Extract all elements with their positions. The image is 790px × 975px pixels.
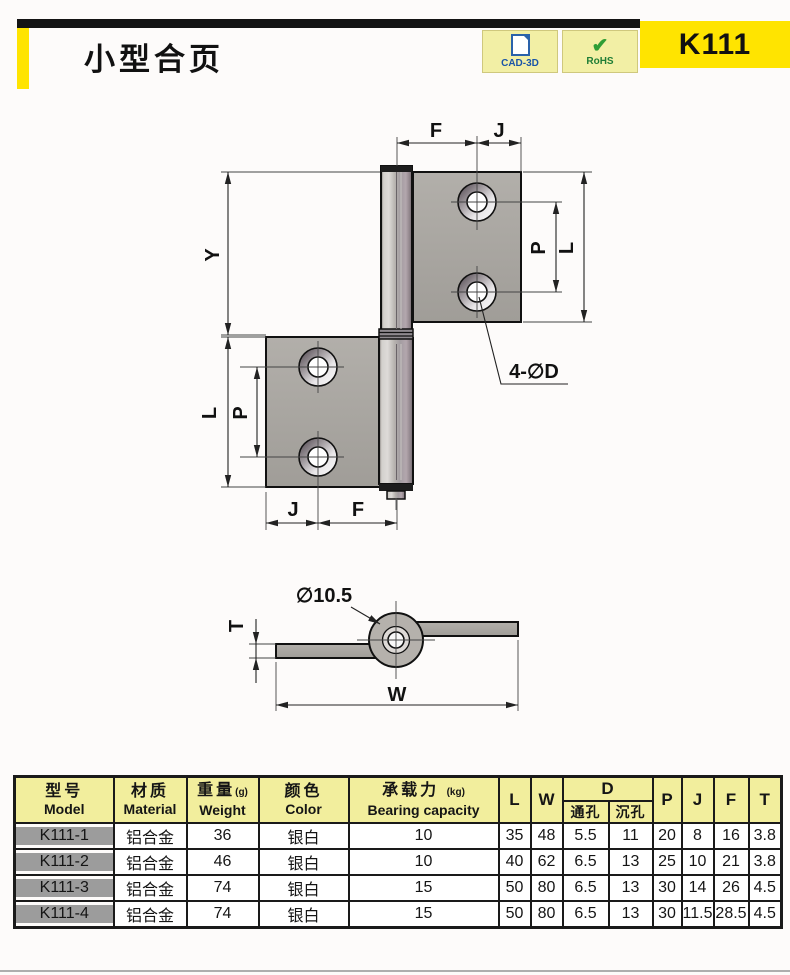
cell-t: 3.8 (749, 849, 782, 875)
col-header-J: J (682, 777, 714, 823)
cell-d-through: 6.5 (563, 901, 609, 928)
spec-table-container: 型号 Model 材质 Material 重量(g) Weight 颜色 Col… (13, 775, 783, 929)
cell-bearing: 15 (349, 875, 499, 901)
cell-p: 25 (653, 849, 682, 875)
spec-table: 型号 Model 材质 Material 重量(g) Weight 颜色 Col… (13, 775, 783, 929)
bottom-divider (0, 970, 790, 972)
barrel-bottom-cap (379, 484, 413, 491)
dim-label-Y: Y (202, 248, 224, 262)
cell-material: 铝合金 (114, 849, 187, 875)
col-header-P: P (653, 777, 682, 823)
cell-t: 4.5 (749, 901, 782, 928)
dim-label-L-right: L (556, 242, 578, 254)
product-code-box: K111 (640, 21, 790, 68)
cell-bearing: 10 (349, 823, 499, 849)
table-row: K111-2 铝合金 46 银白 10 40 62 6.5 13 25 10 2… (15, 849, 782, 875)
cell-bearing: 15 (349, 901, 499, 928)
col-header-color: 颜色 Color (259, 777, 349, 823)
cell-weight: 46 (187, 849, 259, 875)
cell-color: 银白 (259, 849, 349, 875)
catalog-page: { "page": {"background": "#fdfbfa", "bot… (0, 0, 790, 975)
cell-d-through: 6.5 (563, 849, 609, 875)
cell-weight: 36 (187, 823, 259, 849)
left-leaf-profile (276, 644, 382, 658)
dim-label-P-right: P (528, 241, 550, 254)
cell-f: 16 (714, 823, 749, 849)
cell-j: 11.5 (682, 901, 714, 928)
col-header-W: W (531, 777, 563, 823)
table-row: K111-4 铝合金 74 银白 15 50 80 6.5 13 30 11.5… (15, 901, 782, 928)
cell-d-sink: 13 (609, 849, 653, 875)
knuckle-diameter-label: ∅10.5 (296, 585, 352, 607)
barrel-top-cap (381, 166, 412, 172)
cell-color: 银白 (259, 901, 349, 928)
cell-color: 银白 (259, 875, 349, 901)
cell-material: 铝合金 (114, 875, 187, 901)
cell-f: 26 (714, 875, 749, 901)
cell-bearing: 10 (349, 849, 499, 875)
cell-material: 铝合金 (114, 901, 187, 928)
cell-j: 10 (682, 849, 714, 875)
dim-label-L-left: L (199, 407, 221, 419)
col-header-weight: 重量(g) Weight (187, 777, 259, 823)
cell-j: 14 (682, 875, 714, 901)
cell-model: K111-4 (15, 901, 114, 928)
cell-p: 30 (653, 901, 682, 928)
table-row: K111-3 铝合金 74 银白 15 50 80 6.5 13 30 14 2… (15, 875, 782, 901)
knuckle-junction (379, 329, 413, 339)
cell-weight: 74 (187, 875, 259, 901)
hinge-flag-view-drawing: F J Y L P 4-∅D L P J F (170, 100, 625, 560)
col-header-material: 材质 Material (114, 777, 187, 823)
rohs-badge[interactable]: ✔ RoHS (562, 30, 638, 73)
header-yellow-stripe (17, 28, 29, 89)
col-header-L: L (499, 777, 531, 823)
cell-f: 28.5 (714, 901, 749, 928)
cell-w: 80 (531, 901, 563, 928)
cell-d-through: 5.5 (563, 823, 609, 849)
cell-l: 40 (499, 849, 531, 875)
col-header-T: T (749, 777, 782, 823)
cell-f: 21 (714, 849, 749, 875)
cell-t: 4.5 (749, 875, 782, 901)
col-header-D: D (563, 777, 653, 801)
right-leaf-profile (412, 622, 518, 636)
cell-j: 8 (682, 823, 714, 849)
hinge-side-view-drawing: ∅10.5 T W (225, 570, 550, 725)
cell-weight: 74 (187, 901, 259, 928)
table-row: K111-1 铝合金 36 银白 10 35 48 5.5 11 20 8 16… (15, 823, 782, 849)
page-title: 小型合页 (84, 34, 224, 79)
pin-nub (387, 491, 405, 499)
cell-d-through: 6.5 (563, 875, 609, 901)
dim-label-F-bottom: F (352, 499, 364, 521)
col-header-model: 型号 Model (15, 777, 114, 823)
dim-label-F-top: F (430, 120, 442, 142)
dim-label-J-top: J (493, 120, 504, 142)
check-icon: ✔ (592, 37, 609, 55)
col-header-F: F (714, 777, 749, 823)
cell-p: 20 (653, 823, 682, 849)
cell-w: 62 (531, 849, 563, 875)
dim-label-P-left: P (230, 406, 252, 419)
cell-w: 80 (531, 875, 563, 901)
cell-model: K111-3 (15, 875, 114, 901)
cell-l: 35 (499, 823, 531, 849)
cad-3d-badge[interactable]: CAD-3D (482, 30, 558, 73)
cell-w: 48 (531, 823, 563, 849)
cell-p: 30 (653, 875, 682, 901)
col-header-bearing: 承载力 (kg) Bearing capacity (349, 777, 499, 823)
cell-d-sink: 11 (609, 823, 653, 849)
col-header-d-sink: 沉孔 (609, 801, 653, 823)
header-black-bar (17, 19, 640, 28)
cell-color: 银白 (259, 823, 349, 849)
cad-3d-badge-label: CAD-3D (501, 58, 539, 69)
cell-model: K111-2 (15, 849, 114, 875)
col-header-d-through: 通孔 (563, 801, 609, 823)
cell-d-sink: 13 (609, 875, 653, 901)
cell-material: 铝合金 (114, 823, 187, 849)
dim-label-J-bottom: J (287, 499, 298, 521)
cell-model: K111-1 (15, 823, 114, 849)
cell-t: 3.8 (749, 823, 782, 849)
document-icon (511, 34, 530, 56)
cell-l: 50 (499, 901, 531, 928)
cell-d-sink: 13 (609, 901, 653, 928)
cell-l: 50 (499, 875, 531, 901)
dim-label-T: T (226, 620, 248, 632)
dim-label-W: W (388, 684, 407, 706)
hole-callout-label: 4-∅D (509, 361, 559, 383)
rohs-badge-label: RoHS (586, 56, 613, 67)
